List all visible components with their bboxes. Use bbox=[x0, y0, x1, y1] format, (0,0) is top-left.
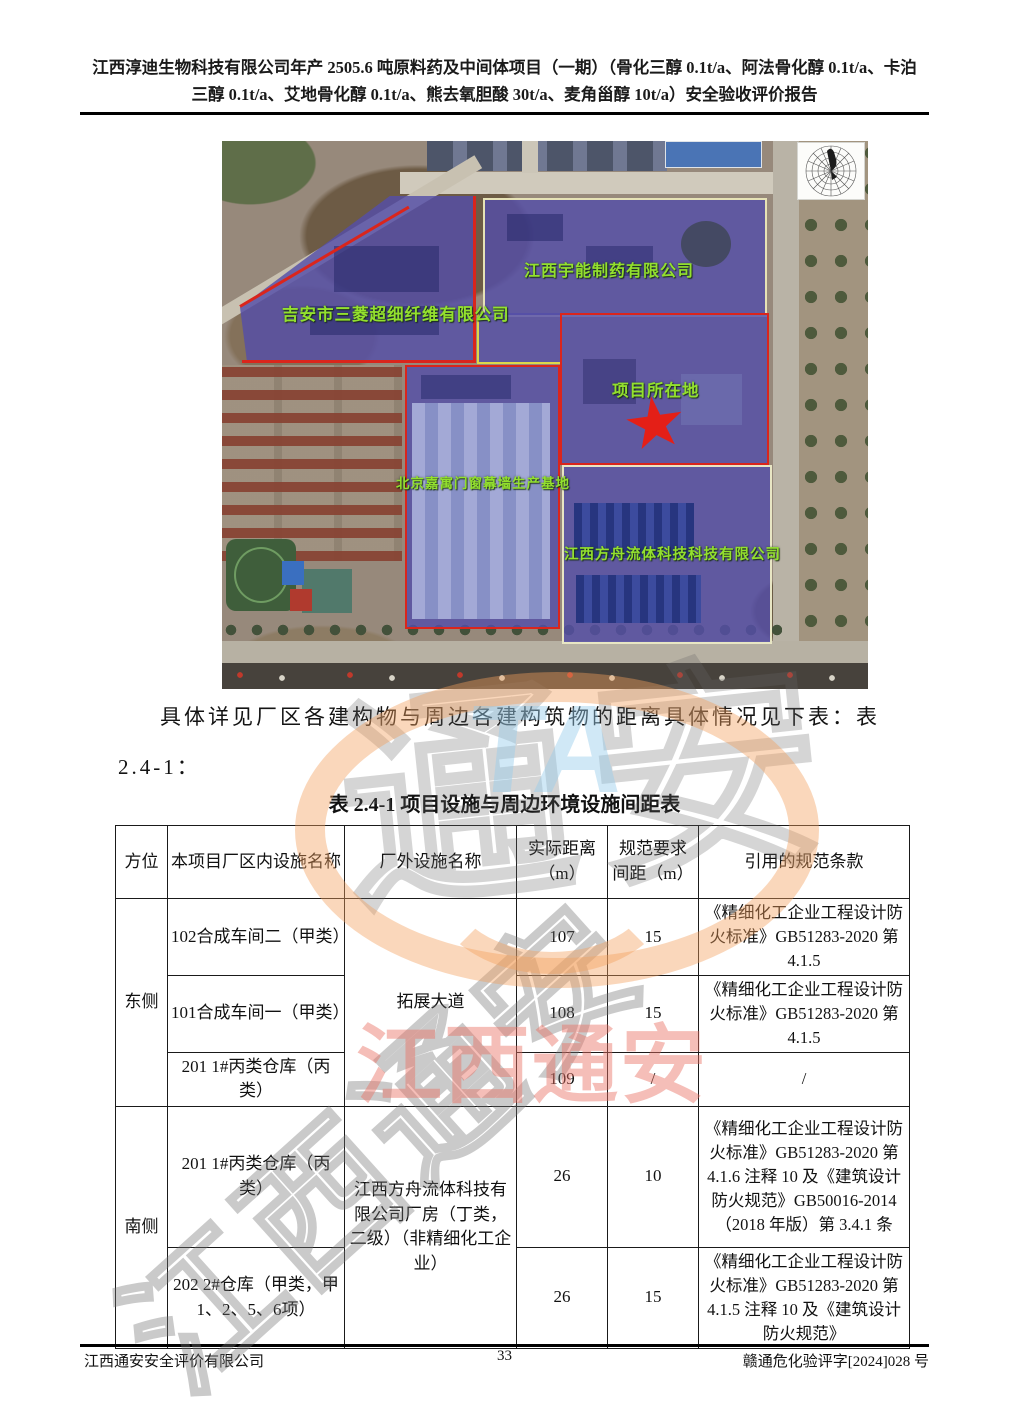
table-header-row: 方位 本项目厂区内设施名称 厂外设施名称 实际距离（m） 规范要求间距（m） 引… bbox=[116, 826, 910, 899]
cell-code-reference: 《精细化工企业工程设计防火标准》GB51283-2020 第 4.1.5 bbox=[699, 975, 910, 1052]
east-road bbox=[773, 141, 799, 689]
report-page: 江西淳迪生物科技有限公司年产 2505.6 吨原料药及中间体项目（一期）（骨化三… bbox=[0, 0, 1009, 1427]
cell-actual-distance: 109 bbox=[517, 1052, 608, 1106]
cell-actual-distance: 107 bbox=[517, 899, 608, 976]
body-paragraph: 具体详见厂区各建构物与周边各建构筑物的距离具体情况见下表：表 2.4-1： bbox=[118, 692, 910, 792]
residential-area bbox=[222, 365, 402, 561]
wind-rose-icon bbox=[797, 142, 865, 200]
south-road bbox=[222, 641, 868, 663]
east-roadside-trees bbox=[799, 141, 868, 689]
col-header-required: 规范要求间距（m） bbox=[608, 826, 699, 899]
map-label-project-site: 项目所在地 bbox=[612, 377, 700, 401]
cell-facility: 102合成车间二（甲类） bbox=[168, 899, 345, 976]
zone-sanling-boundary-right bbox=[473, 196, 476, 363]
header-divider bbox=[80, 112, 929, 115]
zone-jiayu bbox=[405, 365, 560, 629]
footer-divider bbox=[80, 1344, 929, 1347]
table-row: 南侧 201 1#丙类仓库（丙类） 江西方舟流体科技有限公司厂房（丁类，二级）（… bbox=[116, 1106, 910, 1247]
table-title: 表 2.4-1 项目设施与周边环境设施间距表 bbox=[80, 788, 929, 817]
cell-actual-distance: 26 bbox=[517, 1247, 608, 1348]
zone-sanling-boundary-bottom bbox=[242, 360, 476, 363]
map-label-fangzhou: 江西方舟流体科技科技有限公司 bbox=[564, 543, 781, 564]
map-label-yuneng: 江西宇能制药有限公司 bbox=[524, 257, 694, 281]
header-line-1: 江西淳迪生物科技有限公司年产 2505.6 吨原料药及中间体项目（一期）（骨化三… bbox=[80, 54, 929, 81]
cell-facility: 201 1#丙类仓库（丙类） bbox=[168, 1052, 345, 1106]
cell-code-reference: 《精细化工企业工程设计防火标准》GB51283-2020 第 4.1.6 注释 … bbox=[699, 1106, 910, 1247]
cell-required-distance: 15 bbox=[608, 975, 699, 1052]
cell-facility: 202 2#仓库（甲类，甲1、2、5、6项） bbox=[168, 1247, 345, 1348]
map-label-sanling: 吉安市三菱超细纤维有限公司 bbox=[282, 301, 510, 325]
cell-outside-facility: 江西方舟流体科技有限公司厂房（丁类，二级）（非精细化工企业） bbox=[345, 1106, 517, 1348]
map-label-jiayu: 北京嘉寓门窗幕墙生产基地 bbox=[396, 472, 570, 492]
table-row: 东侧 102合成车间二（甲类） 拓展大道 107 15 《精细化工企业工程设计防… bbox=[116, 899, 910, 976]
blue-roof-structure bbox=[282, 561, 304, 585]
cell-required-distance: 15 bbox=[608, 899, 699, 976]
col-header-code: 引用的规范条款 bbox=[699, 826, 910, 899]
cell-code-reference: / bbox=[699, 1052, 910, 1106]
cell-outside-facility: 拓展大道 bbox=[345, 899, 517, 1107]
cell-direction-south: 南侧 bbox=[116, 1106, 168, 1348]
distance-table: 方位 本项目厂区内设施名称 厂外设施名称 实际距离（m） 规范要求间距（m） 引… bbox=[115, 825, 910, 1349]
south-building-strip bbox=[222, 663, 868, 689]
cell-code-reference: 《精细化工企业工程设计防火标准》GB51283-2020 第 4.1.5 bbox=[699, 899, 910, 976]
header-line-2: 三醇 0.1t/a、艾地骨化醇 0.1t/a、熊去氧胆酸 30t/a、麦角甾醇 … bbox=[80, 81, 929, 108]
col-header-actual: 实际距离（m） bbox=[517, 826, 608, 899]
north-road-stub bbox=[522, 141, 538, 173]
col-header-facility: 本项目厂区内设施名称 bbox=[168, 826, 345, 899]
cell-code-reference: 《精细化工企业工程设计防火标准》GB51283-2020 第 4.1.5 注释 … bbox=[699, 1247, 910, 1348]
north-blue-roof-building bbox=[665, 141, 762, 168]
cell-facility: 201 1#丙类仓库（丙类） bbox=[168, 1106, 345, 1247]
cell-required-distance: 15 bbox=[608, 1247, 699, 1348]
col-header-direction: 方位 bbox=[116, 826, 168, 899]
col-header-outside: 厂外设施名称 bbox=[345, 826, 517, 899]
cell-actual-distance: 26 bbox=[517, 1106, 608, 1247]
cell-facility: 101合成车间一（甲类） bbox=[168, 975, 345, 1052]
page-header: 江西淳迪生物科技有限公司年产 2505.6 吨原料药及中间体项目（一期）（骨化三… bbox=[80, 54, 929, 108]
cell-required-distance: 10 bbox=[608, 1106, 699, 1247]
red-roof-structure bbox=[290, 589, 312, 611]
cell-required-distance: / bbox=[608, 1052, 699, 1106]
site-satellite-map: 江西宇能制药有限公司 吉安市三菱超细纤维有限公司 项目所在地 北京嘉寓门窗幕墙生… bbox=[222, 141, 868, 689]
cell-direction-east: 东侧 bbox=[116, 899, 168, 1107]
cell-actual-distance: 108 bbox=[517, 975, 608, 1052]
footer-doc-number: 赣通危化验评字[2024]028 号 bbox=[743, 1350, 929, 1371]
